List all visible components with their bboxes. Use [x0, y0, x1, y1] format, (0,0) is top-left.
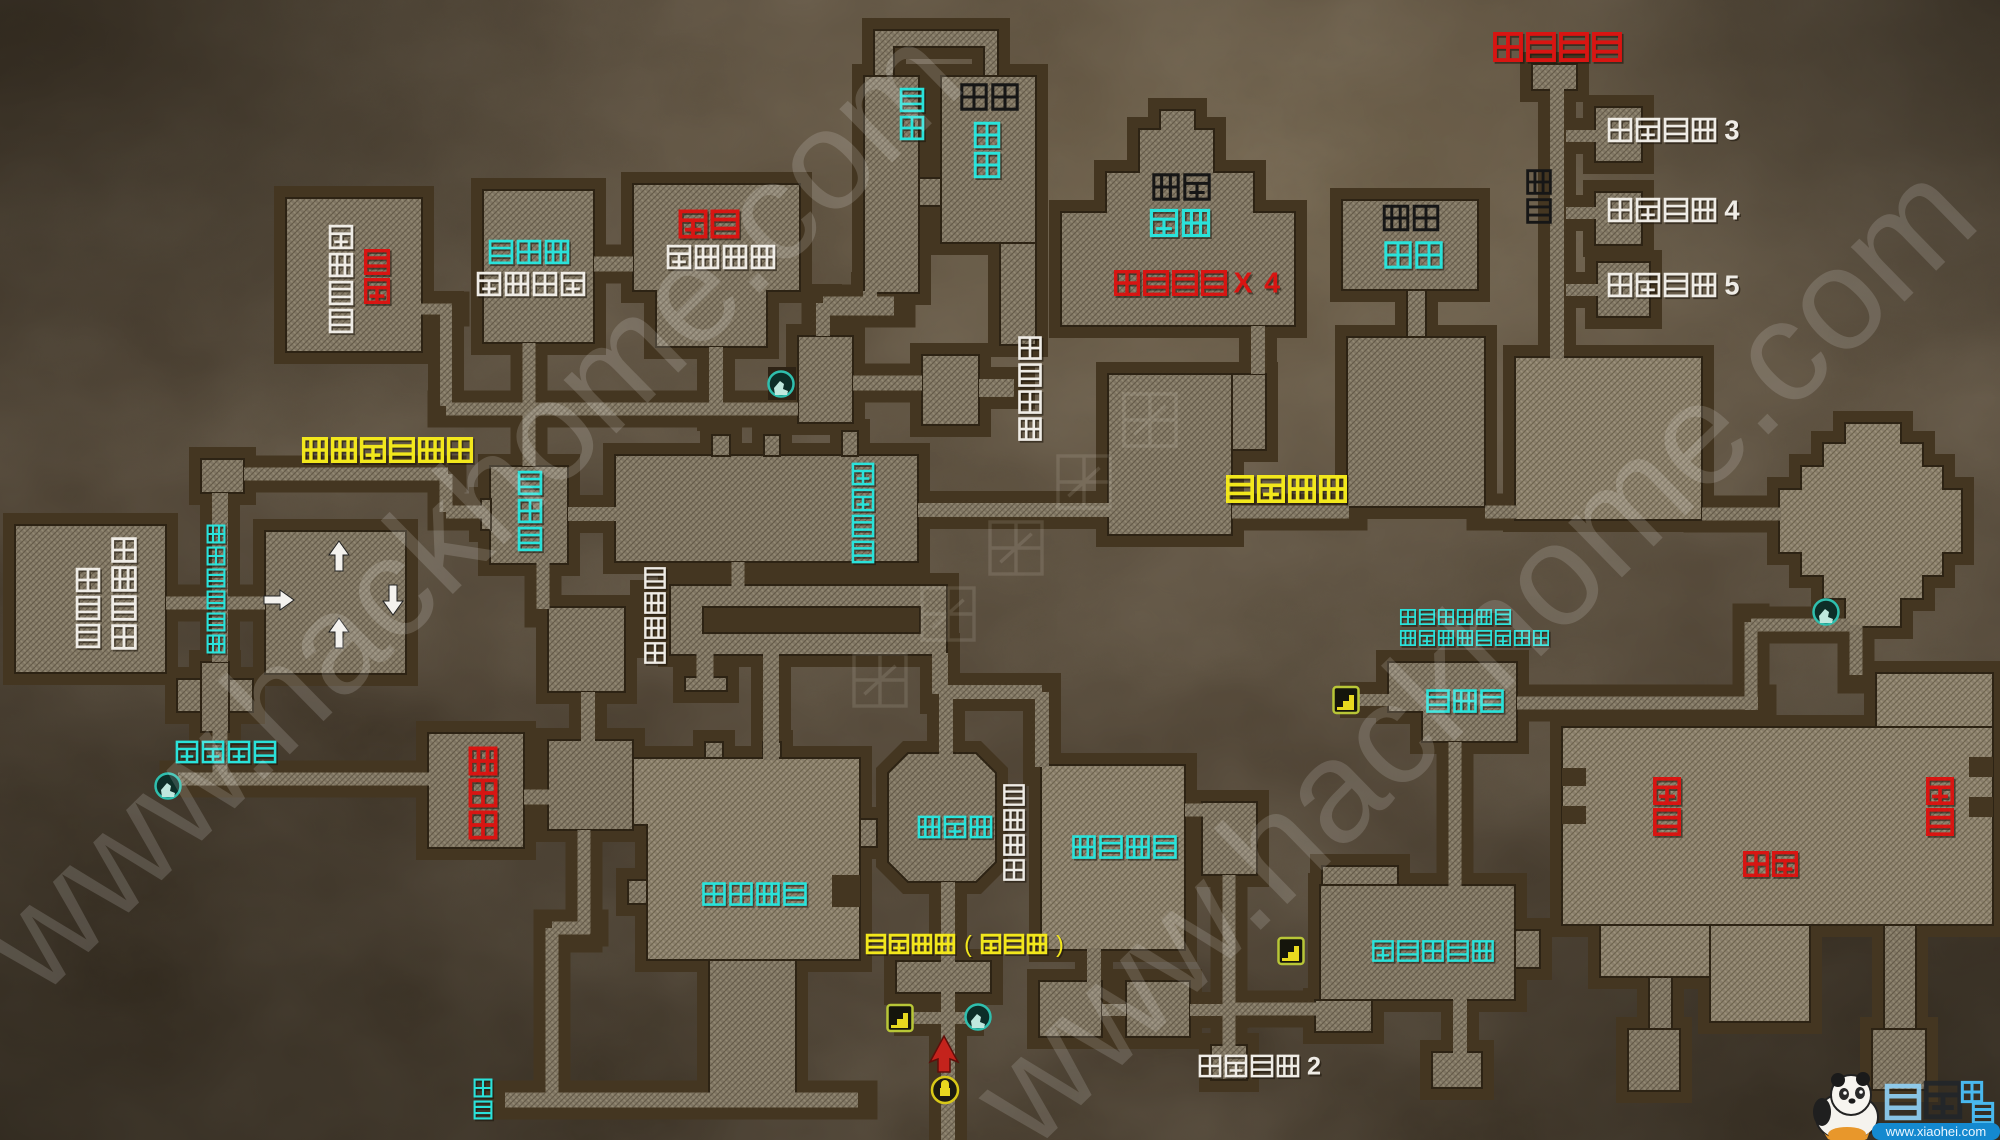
svg-text:4: 4 [1264, 268, 1280, 300]
svg-text:(: ( [964, 931, 972, 957]
svg-text:X: X [1234, 268, 1253, 300]
svg-text:3: 3 [1724, 114, 1739, 145]
svg-text:2: 2 [1307, 1053, 1321, 1081]
svg-text:www.xiaohei.com: www.xiaohei.com [1885, 1124, 1986, 1139]
svg-text:4: 4 [1724, 194, 1740, 225]
